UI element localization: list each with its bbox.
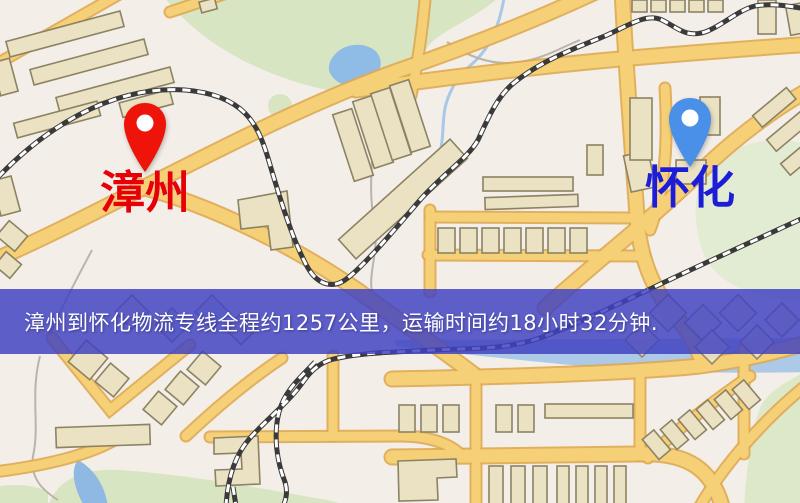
- map-screenshot: 漳州到怀化物流专线全程约1257公里，运输时间约18小时32分钟. 漳州 怀化: [0, 0, 800, 503]
- destination-marker: 怀化: [660, 92, 720, 170]
- route-info-banner: 漳州到怀化物流专线全程约1257公里，运输时间约18小时32分钟.: [0, 289, 800, 354]
- destination-label: 怀化: [645, 164, 735, 211]
- origin-marker: 漳州: [115, 97, 175, 175]
- map-pin-icon: [115, 97, 175, 175]
- origin-label: 漳州: [100, 169, 190, 216]
- map-pin-icon: [660, 92, 720, 170]
- route-info-text: 漳州到怀化物流专线全程约1257公里，运输时间约18小时32分钟.: [24, 307, 658, 337]
- map-image: [0, 0, 800, 503]
